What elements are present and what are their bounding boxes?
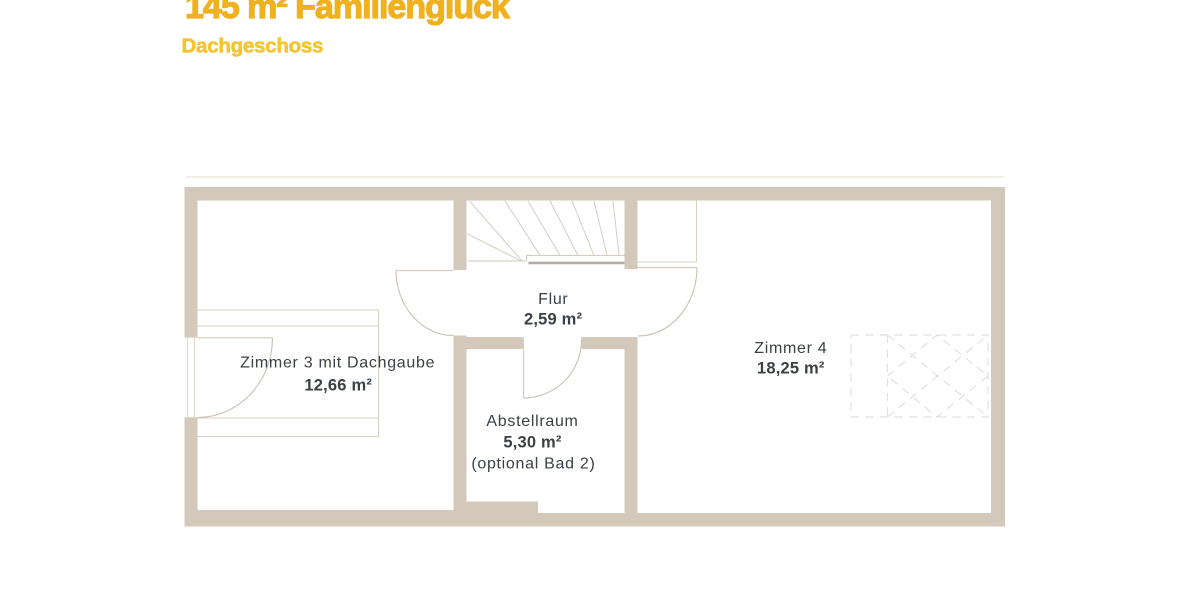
svg-text:Zimmer 4: Zimmer 4 [754, 340, 827, 357]
svg-text:(optional Bad 2): (optional Bad 2) [471, 456, 595, 473]
svg-text:Dachgeschoss: Dachgeschoss [182, 35, 324, 58]
svg-text:Flur: Flur [538, 291, 568, 308]
svg-text:145 m² Familienglück: 145 m² Familienglück [185, 0, 510, 26]
svg-text:12,66 m²: 12,66 m² [304, 377, 372, 395]
svg-text:18,25 m²: 18,25 m² [757, 360, 825, 378]
svg-text:5,30 m²: 5,30 m² [503, 434, 562, 452]
svg-text:Abstellraum: Abstellraum [486, 413, 578, 430]
svg-text:2,59 m²: 2,59 m² [524, 311, 583, 329]
svg-text:Zimmer 3 mit Dachgaube: Zimmer 3 mit Dachgaube [240, 355, 435, 372]
